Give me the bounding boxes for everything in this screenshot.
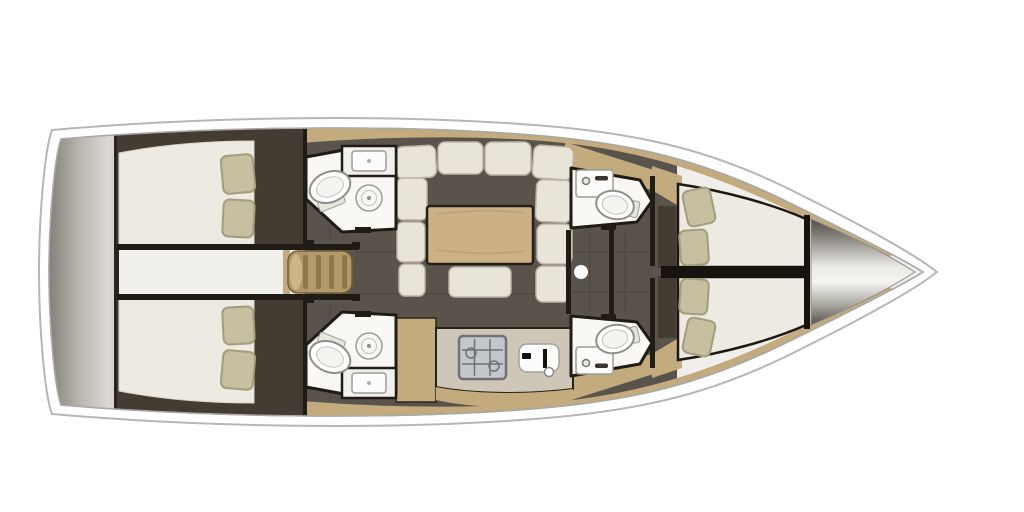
sofa-cushion <box>397 178 427 220</box>
faucet-knob <box>545 368 554 377</box>
floor-plan-svg <box>0 0 1024 512</box>
sofa-cushion <box>536 266 570 302</box>
companionway-steps <box>288 251 352 293</box>
bow-bulkhead-wall <box>804 215 810 329</box>
sofa-cushion <box>399 264 425 296</box>
door-mark <box>352 294 360 301</box>
sofa-cushion <box>535 179 572 222</box>
passage-wall-starboard <box>117 294 359 300</box>
galley <box>396 318 573 407</box>
fwd-bulkhead-wall <box>650 278 655 368</box>
interior <box>48 122 915 421</box>
sofa-cushion <box>438 142 483 174</box>
stove-body <box>459 336 506 379</box>
faucet-base <box>522 353 531 359</box>
step-tread <box>342 255 347 289</box>
corridor-wall <box>566 230 571 314</box>
aft-cabin-port <box>117 127 307 248</box>
mast-post <box>574 265 588 279</box>
aft-passage <box>119 249 286 295</box>
fwd-cabinet-starboard <box>658 276 676 338</box>
step-tread <box>316 255 321 289</box>
saloon-table <box>427 206 533 264</box>
stove-icon <box>459 336 506 379</box>
passage-wall-port <box>117 244 359 250</box>
galley-cabinet <box>396 318 436 402</box>
fwd-cabinet-port <box>658 206 676 268</box>
fwd-bulkhead-wall <box>650 176 655 266</box>
door-mark <box>352 242 360 249</box>
sofa-cushion <box>397 222 425 262</box>
yacht-floor-plan <box>0 0 1024 512</box>
saloon <box>395 142 574 302</box>
galley-sink-icon <box>519 344 559 377</box>
sofa-cushion <box>532 145 574 181</box>
faucet-arm <box>543 349 547 368</box>
swim-platform <box>48 133 118 411</box>
step-tread <box>329 255 334 289</box>
door-mark <box>306 296 314 303</box>
door-mark <box>306 240 314 247</box>
step-tread <box>303 255 308 289</box>
steps-handrail <box>290 254 302 290</box>
ottoman <box>449 267 511 297</box>
berth-divider <box>661 266 808 278</box>
aft-cabin-starboard <box>117 296 307 417</box>
sofa-cushion <box>395 145 437 179</box>
sofa-cushion <box>485 142 531 175</box>
corridor-wall <box>609 228 614 316</box>
